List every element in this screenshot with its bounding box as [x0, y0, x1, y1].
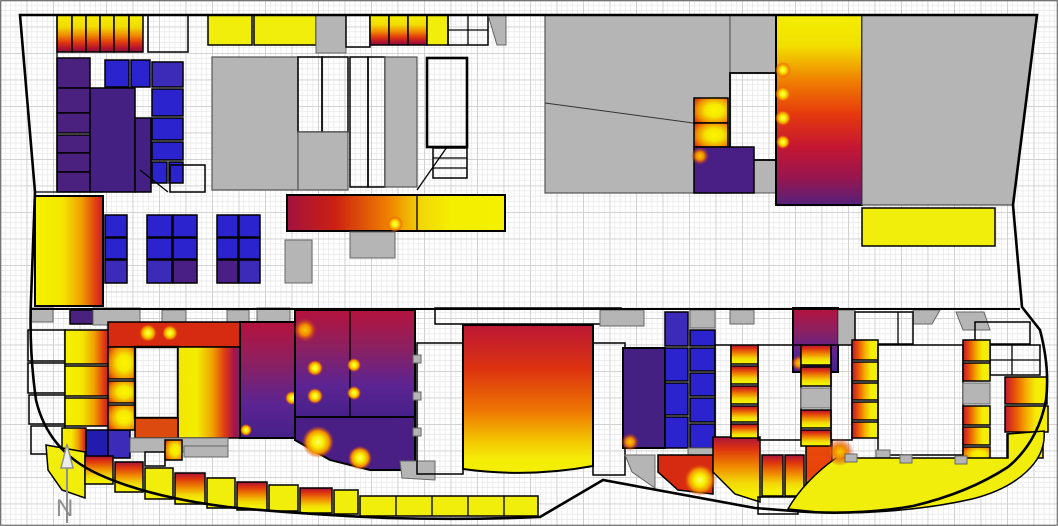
glow	[621, 433, 639, 451]
cell-purple	[57, 113, 90, 133]
glow	[348, 446, 372, 470]
window-cell	[108, 347, 135, 379]
cell-blue	[217, 238, 238, 259]
window-cell	[963, 340, 990, 361]
window-cell	[100, 15, 114, 52]
window-cell	[65, 398, 108, 426]
cell-blue	[665, 312, 688, 346]
cell-blue	[173, 260, 197, 283]
window-cell	[1005, 377, 1047, 404]
room-yellow	[334, 490, 358, 514]
door-tab	[900, 455, 912, 463]
room-yellow	[254, 15, 316, 45]
glow	[387, 216, 403, 232]
window-cell	[694, 98, 728, 123]
window-cell	[129, 15, 143, 52]
cell-blue	[239, 215, 260, 237]
window-cell	[165, 440, 182, 460]
cell-blue	[147, 260, 172, 283]
cell-blue	[152, 62, 183, 87]
cell-blue	[152, 118, 183, 140]
window-cell	[801, 345, 831, 365]
room-heat	[776, 15, 862, 205]
window-cell	[408, 15, 427, 45]
core-gray	[257, 308, 290, 323]
window-cell	[801, 367, 831, 386]
window-cell	[801, 410, 831, 428]
cell-purple	[57, 172, 90, 192]
core-gray	[30, 308, 53, 322]
room-heat	[178, 347, 240, 438]
cell-blue	[131, 60, 150, 87]
room-purple	[623, 348, 665, 448]
cell-blue	[173, 238, 197, 259]
window-cell	[114, 15, 129, 52]
window-cell	[108, 405, 135, 430]
window-cell	[300, 488, 332, 513]
cell-purple	[57, 135, 90, 153]
glow	[347, 358, 361, 372]
cell-blue	[105, 238, 127, 259]
door-tab	[413, 428, 421, 436]
window-cell	[731, 366, 758, 384]
core-gray	[285, 240, 312, 283]
cell-gray	[801, 388, 831, 408]
cell-gray	[963, 383, 990, 404]
door-tab	[845, 454, 857, 462]
cell-blue	[105, 60, 129, 87]
window-cell	[963, 406, 990, 425]
room-purple	[90, 88, 135, 192]
glow	[307, 388, 323, 404]
room-heat	[463, 325, 593, 473]
cell-blue	[665, 383, 688, 415]
room-yellow	[862, 208, 995, 246]
core-gray	[212, 57, 298, 190]
core-gray	[600, 310, 644, 326]
door-tab	[413, 355, 421, 363]
window-cell	[57, 15, 72, 52]
cell-blue	[147, 238, 172, 259]
glow	[139, 324, 157, 342]
glow	[691, 147, 709, 165]
window-cell	[852, 402, 878, 420]
door-tab	[955, 456, 967, 464]
window-cell	[86, 15, 100, 52]
core-gray	[862, 15, 1037, 205]
door-tab	[413, 392, 421, 400]
cell-purple	[57, 58, 90, 88]
core-gray	[162, 310, 186, 322]
glow	[775, 62, 791, 78]
cell-blue	[690, 330, 715, 346]
window-cell	[731, 424, 758, 438]
core-gray	[350, 232, 395, 258]
window-cell	[762, 455, 783, 496]
cell-purple	[57, 88, 90, 113]
cell-blue	[690, 348, 715, 371]
room-yellow	[269, 485, 298, 511]
glow	[240, 424, 252, 436]
cell-blue	[690, 398, 715, 422]
window-cell	[731, 406, 758, 422]
glow	[347, 386, 361, 400]
glow	[775, 86, 791, 102]
core-gray	[730, 15, 776, 73]
window-cell	[731, 386, 758, 404]
room-yellow	[427, 15, 448, 45]
window-cell	[852, 340, 878, 360]
cell-blue	[147, 215, 172, 237]
window-cell	[694, 123, 728, 147]
glow	[684, 464, 716, 496]
cell-purple	[57, 153, 90, 172]
cell-purple	[70, 310, 93, 324]
room-purple	[135, 118, 151, 192]
window-cell	[65, 366, 108, 396]
floorplan-stage: N	[0, 0, 1058, 526]
glow	[302, 426, 334, 458]
core-gray	[298, 132, 348, 190]
window-cell	[852, 422, 878, 438]
cell-blue	[152, 89, 183, 116]
glow	[293, 318, 317, 342]
core-gray	[730, 310, 754, 324]
glow	[775, 110, 791, 126]
cell-blue	[665, 348, 688, 381]
floorplan-canvas: N	[0, 0, 1058, 526]
window-cell	[731, 345, 758, 364]
room-yellow	[208, 15, 252, 45]
core-gray	[690, 310, 715, 328]
room-heat	[135, 418, 178, 438]
glow	[776, 135, 790, 149]
room-heat	[240, 322, 295, 438]
cell-blue	[665, 417, 688, 448]
cell-blue	[86, 430, 108, 458]
window-cell	[115, 462, 143, 492]
room-yellow	[360, 496, 538, 516]
glow	[162, 325, 178, 341]
cell-blue	[239, 238, 260, 259]
window-cell	[801, 430, 831, 446]
window-cell	[389, 15, 408, 45]
window-cell	[370, 15, 389, 45]
window-cell	[65, 330, 108, 364]
room-gray	[316, 15, 346, 53]
cell-blue	[217, 260, 238, 283]
cell-blue	[690, 373, 715, 396]
cell-blue	[152, 162, 167, 183]
window-cell	[963, 427, 990, 445]
cell-blue	[105, 215, 127, 237]
cell-blue	[152, 142, 183, 160]
core-gray	[184, 446, 228, 457]
cell-blue	[105, 260, 127, 283]
cell-blue	[690, 424, 715, 448]
north-label: N	[56, 495, 73, 522]
window-cell	[108, 381, 135, 403]
cell-blue	[239, 260, 260, 283]
cell-blue	[108, 430, 130, 458]
window-cell	[852, 362, 878, 381]
room-heat	[35, 196, 103, 306]
cell-blue	[173, 215, 197, 237]
core-gray	[385, 57, 417, 187]
window-cell	[852, 383, 878, 400]
window-cell	[237, 482, 267, 510]
cell-blue	[217, 215, 238, 237]
glow	[307, 360, 323, 376]
window-cell	[72, 15, 86, 52]
window-cell	[963, 363, 990, 381]
